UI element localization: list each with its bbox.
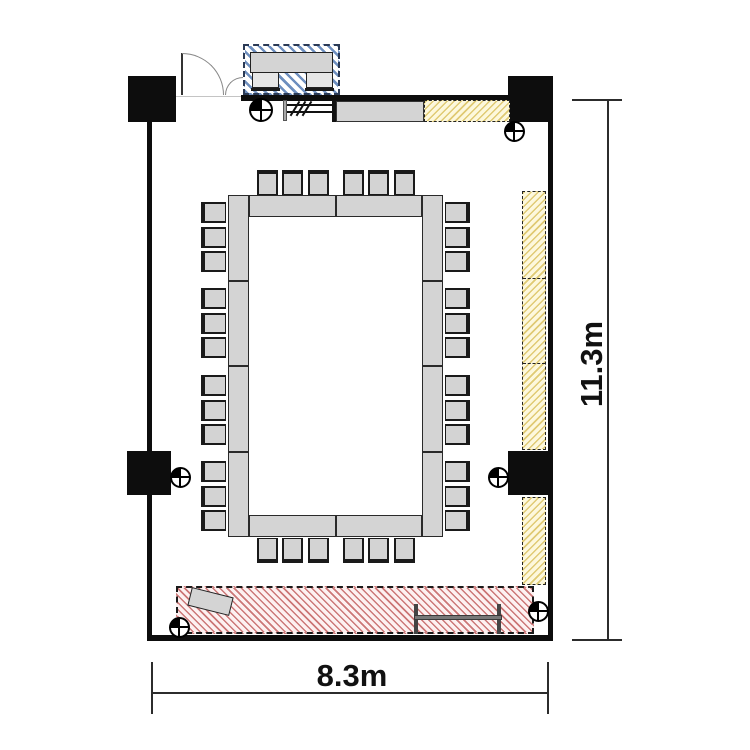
chair: [308, 538, 329, 560]
chair: [368, 538, 389, 560]
dimension-tick: [547, 662, 549, 714]
dimension-height-label: 11.3m: [574, 321, 610, 407]
column-mid-right: [508, 451, 553, 495]
table-segment: [228, 195, 249, 281]
table-segment: [249, 195, 336, 217]
table-segment: [422, 366, 443, 452]
chair: [445, 486, 467, 507]
door-swing-arc-small: [225, 77, 243, 95]
chair: [445, 510, 467, 531]
chair: [308, 173, 329, 195]
chair: [204, 486, 226, 507]
chair: [257, 538, 278, 560]
dimension-width-label: 8.3m: [317, 658, 388, 694]
chair: [343, 538, 364, 560]
chair: [445, 251, 467, 272]
storage-divider: [523, 363, 545, 364]
floor-marker-icon: [528, 601, 549, 622]
chair: [445, 424, 467, 445]
chair: [204, 337, 226, 358]
floor-marker-icon: [249, 98, 273, 122]
table-segment: [228, 281, 249, 367]
reception-chair: [252, 72, 279, 88]
storage-divider: [523, 278, 545, 279]
table-segment: [336, 515, 423, 537]
storage-strip-right-lower: [522, 497, 546, 585]
chair: [445, 227, 467, 248]
column-mid-left: [127, 451, 171, 495]
table-segment: [422, 195, 443, 281]
chair: [445, 288, 467, 309]
dimension-tick: [572, 639, 622, 641]
chair: [343, 173, 364, 195]
column-top-left: [128, 76, 176, 122]
chair: [394, 173, 415, 195]
chair: [204, 313, 226, 334]
storage-strip-top: [424, 100, 510, 122]
chair: [282, 538, 303, 560]
chair: [445, 400, 467, 421]
chair: [204, 424, 226, 445]
table-segment: [228, 452, 249, 538]
chair: [445, 337, 467, 358]
wall-cabinet: [336, 101, 424, 122]
floor-plan: 11.3m 8.3m: [0, 0, 750, 750]
door-threshold: [176, 96, 241, 98]
floor-marker-icon: [504, 121, 525, 142]
column-top-right: [508, 76, 553, 122]
chair: [204, 202, 226, 223]
dimension-tick: [572, 99, 622, 101]
table-segment: [228, 366, 249, 452]
chair: [445, 202, 467, 223]
chair: [204, 461, 226, 482]
storage-strip-right-upper: [522, 191, 546, 450]
floor-marker-icon: [170, 467, 191, 488]
floor-marker-icon: [488, 467, 509, 488]
chair: [368, 173, 389, 195]
folded-table: [414, 615, 502, 620]
reception-chair: [306, 72, 333, 88]
chair: [445, 313, 467, 334]
reception-table: [250, 52, 333, 73]
chair: [394, 538, 415, 560]
chair: [204, 227, 226, 248]
floor-marker-icon: [169, 617, 190, 638]
chair: [204, 510, 226, 531]
table-segment: [422, 452, 443, 538]
chair: [282, 173, 303, 195]
dimension-tick: [151, 662, 153, 714]
chair: [445, 461, 467, 482]
wall-right: [548, 95, 553, 641]
chair: [204, 288, 226, 309]
chair: [204, 400, 226, 421]
chair: [445, 375, 467, 396]
wall-bottom: [147, 635, 553, 641]
chair: [204, 251, 226, 272]
chair: [204, 375, 226, 396]
table-segment: [249, 515, 336, 537]
door-swing-arc: [182, 53, 224, 95]
table-segment: [336, 195, 423, 217]
wall-left: [147, 96, 152, 641]
table-segment: [422, 281, 443, 367]
chair: [257, 173, 278, 195]
